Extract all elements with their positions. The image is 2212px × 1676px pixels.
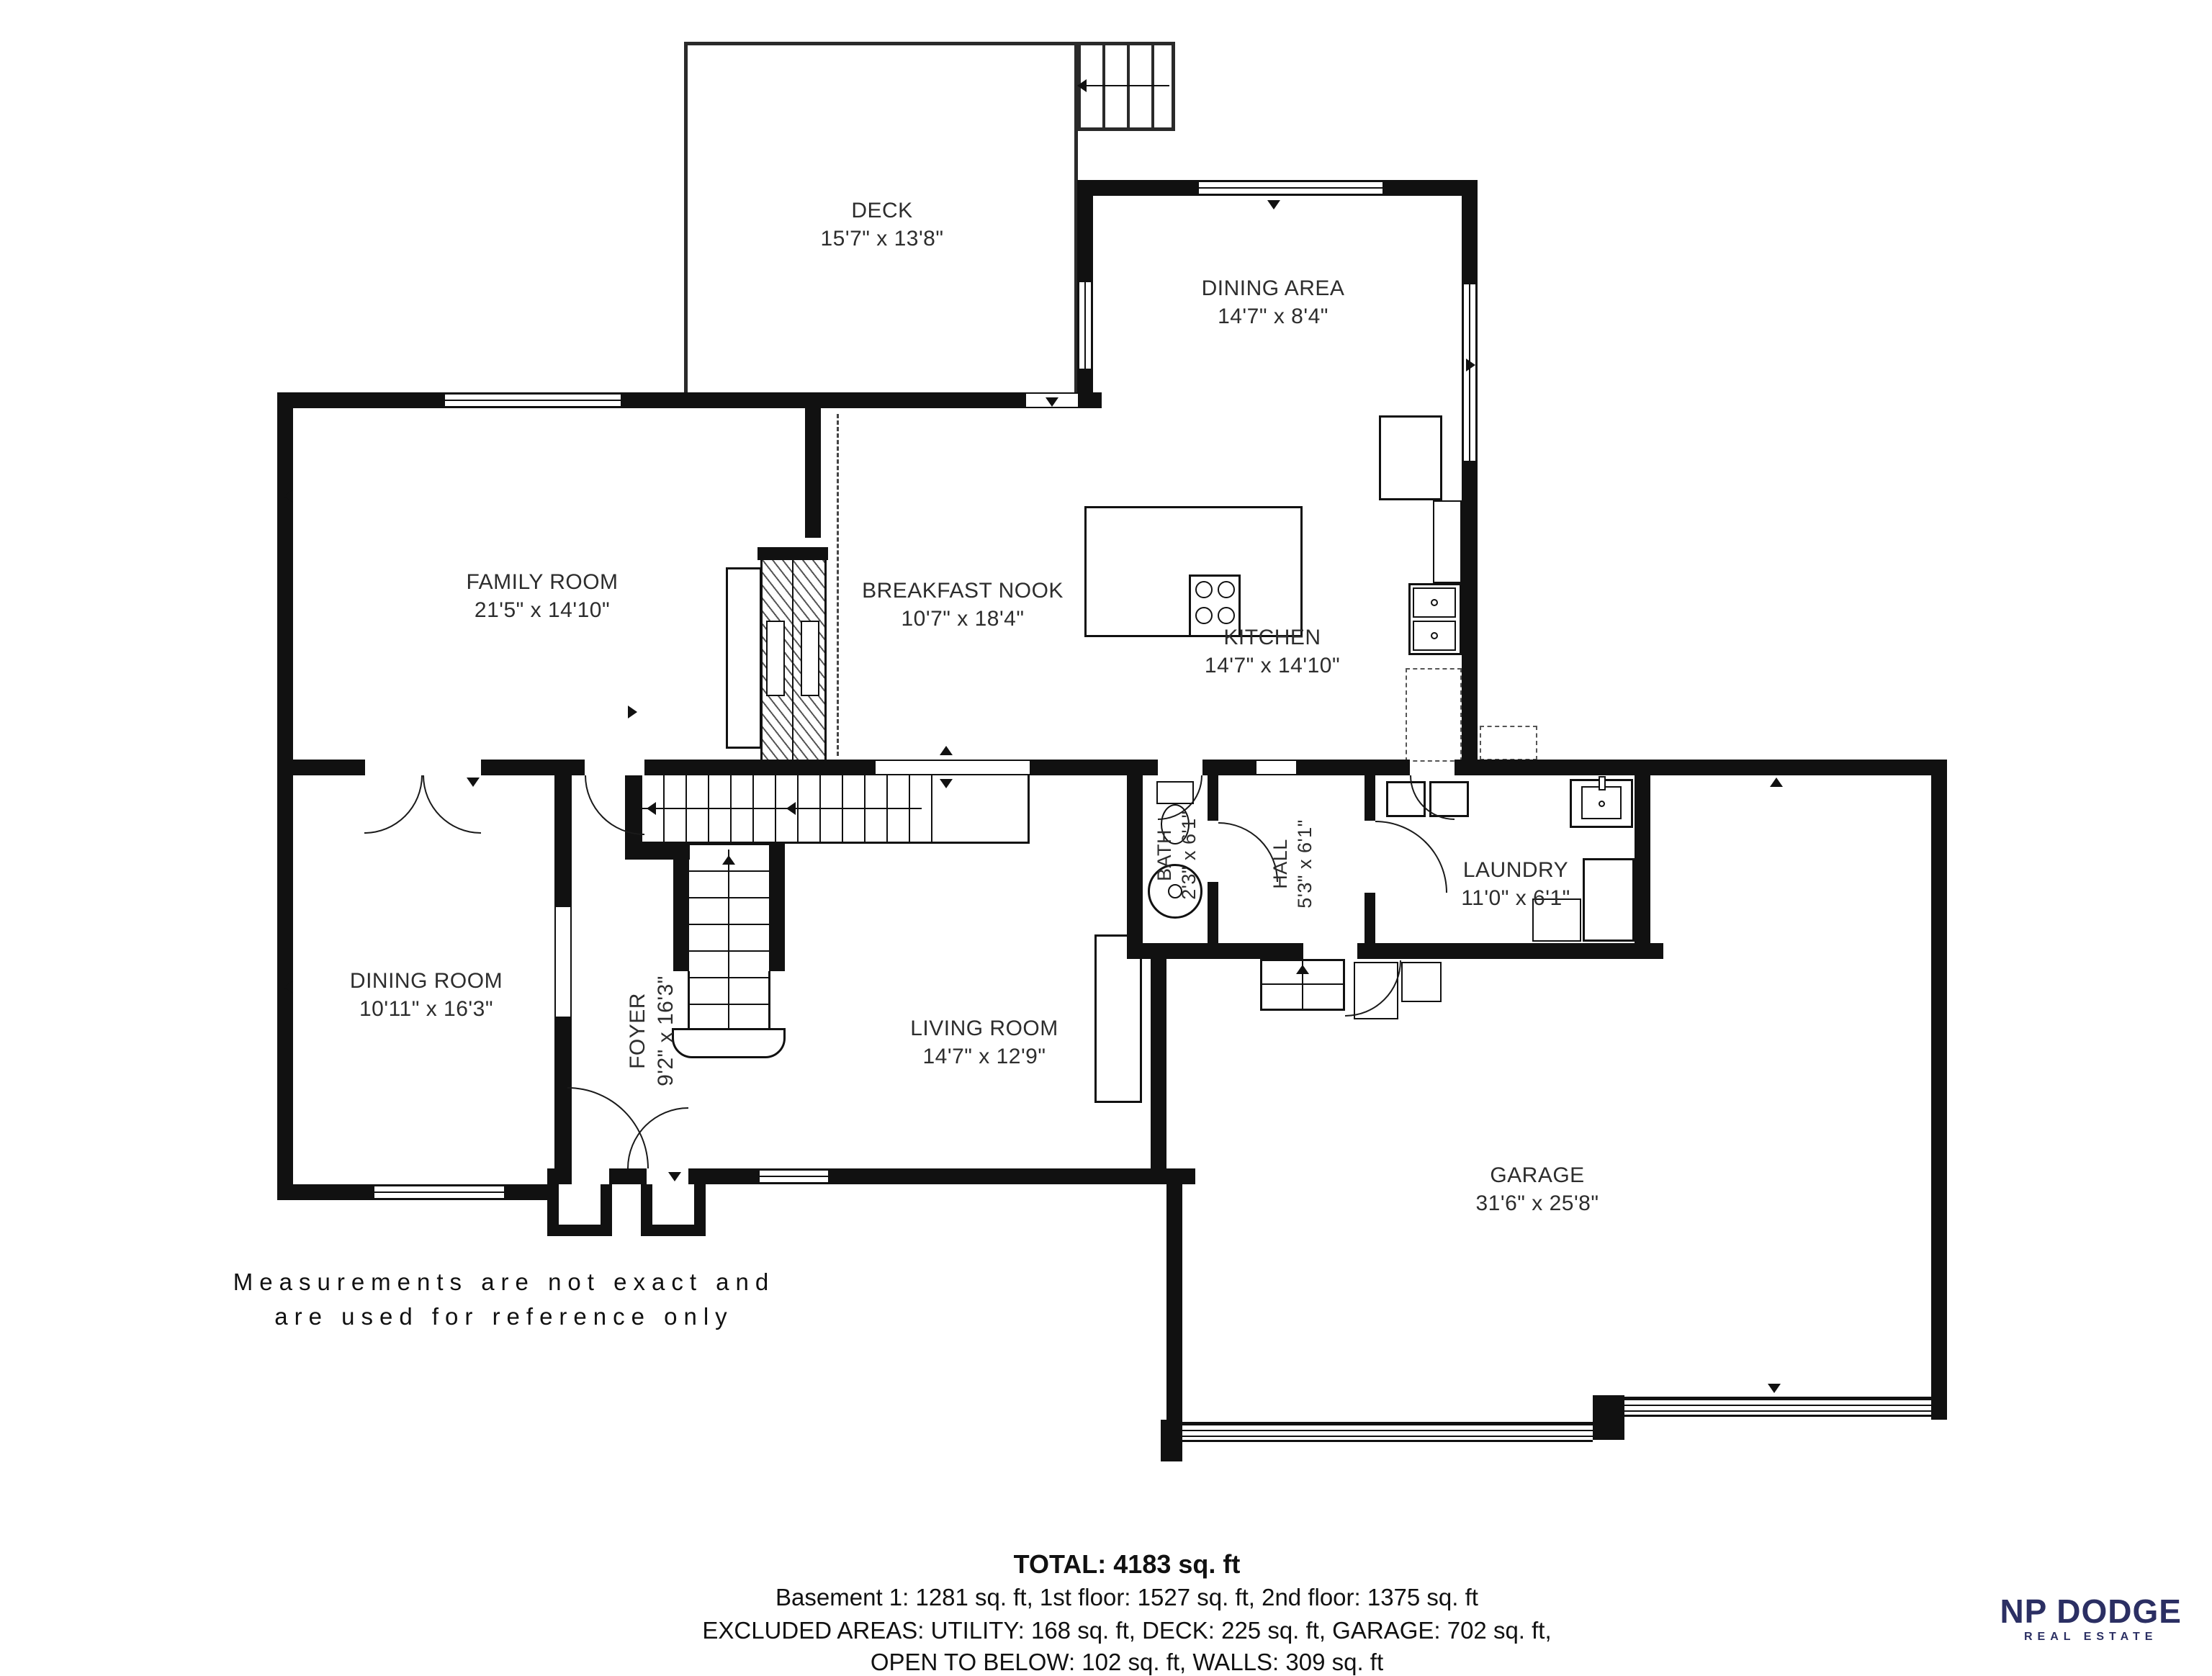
total-area: TOTAL: 4183 sq. ft: [1014, 1549, 1241, 1580]
room-label: DINING AREA: [1202, 274, 1345, 302]
marker-arrow-icon: [284, 981, 293, 994]
excluded-areas-1: EXCLUDED AREAS: UTILITY: 168 sq. ft, DEC…: [702, 1617, 1551, 1644]
room-dims: 31'6" x 25'8": [1475, 1189, 1599, 1217]
room-label: KITCHEN: [1205, 623, 1340, 652]
marker-arrow-icon: [1770, 778, 1783, 787]
brand-tagline: REAL ESTATE: [2000, 1628, 2182, 1646]
stairs-direction-line: [728, 850, 729, 1030]
marker-arrow-icon: [284, 490, 293, 503]
disclaimer-line: Measurements are not exact and: [233, 1265, 775, 1299]
fireplace-cap: [757, 547, 828, 560]
marker-arrow-icon: [467, 778, 480, 787]
room-hall: HALL 5'3" x 6'1": [1268, 819, 1317, 909]
room-label: DINING ROOM: [350, 967, 503, 995]
wall: [805, 408, 821, 538]
burner-icon: [1218, 607, 1235, 624]
marker-arrow-icon: [1934, 1208, 1943, 1221]
wall: [1077, 196, 1093, 282]
deck-stairs-arrow-icon: [1077, 79, 1087, 92]
utility-furnace: [1094, 934, 1142, 1103]
marker-arrow-icon: [1046, 397, 1058, 407]
burner-icon: [1195, 581, 1213, 598]
window: [1199, 180, 1382, 196]
wall: [293, 760, 365, 775]
room-label: FAMILY ROOM: [466, 568, 618, 596]
wall: [1593, 1395, 1624, 1440]
garage-door: [1624, 1397, 1931, 1417]
room-label: FOYER: [624, 976, 652, 1086]
wall: [1455, 760, 1663, 775]
room-label: GARAGE: [1475, 1161, 1599, 1189]
room-dims: 9'2" x 16'3": [652, 976, 680, 1086]
marker-arrow-icon: [940, 746, 953, 755]
wall: [625, 844, 690, 860]
room-label: LIVING ROOM: [910, 1014, 1058, 1042]
wall: [554, 775, 572, 907]
room-garage: GARAGE 31'6" x 25'8": [1475, 1161, 1599, 1217]
kitchen-cabinet: [1379, 415, 1442, 500]
room-breakfast-nook: BREAKFAST NOOK 10'7" x 18'4": [862, 577, 1064, 633]
room-kitchen: KITCHEN 14'7" x 14'10": [1205, 623, 1340, 680]
room-dims: 14'7" x 12'9": [910, 1042, 1058, 1071]
foyer-opening: [554, 907, 572, 1017]
room-label: LAUNDRY: [1461, 856, 1570, 884]
opening: [876, 760, 1030, 775]
room-label: BREAKFAST NOOK: [862, 577, 1064, 605]
garage-door: [1182, 1422, 1593, 1442]
sink-drain-icon: [1431, 599, 1438, 606]
window: [374, 1184, 504, 1200]
wall: [644, 760, 876, 775]
wall: [1364, 775, 1375, 821]
dishwasher: [1406, 668, 1462, 762]
porch-recess: [547, 1184, 612, 1236]
stairs-arrow-icon: [647, 802, 656, 815]
sink-drain-icon: [1599, 801, 1605, 807]
wall: [688, 1168, 760, 1184]
front-door-swing: [627, 1107, 688, 1168]
porch-recess: [641, 1184, 706, 1236]
room-dims: 15'7" x 13'8": [820, 225, 943, 253]
np-dodge-logo: NP DODGE REAL ESTATE: [2000, 1594, 2182, 1646]
room-label: HALL: [1268, 819, 1292, 909]
ceiling-break-line: [837, 414, 839, 756]
wall: [481, 760, 585, 775]
wall: [1030, 760, 1158, 775]
marker-arrow-icon: [1466, 359, 1475, 371]
door-swing: [585, 775, 644, 835]
disclaimer-line: are used for reference only: [233, 1299, 775, 1334]
room-label: DECK: [820, 197, 943, 225]
marker-arrow-icon: [1768, 1384, 1781, 1393]
wall: [1127, 775, 1143, 943]
stairs-arrow-icon: [786, 802, 796, 815]
wall: [1077, 369, 1093, 408]
wall: [1202, 760, 1256, 775]
room-living-room: LIVING ROOM 14'7" x 12'9": [910, 1014, 1058, 1071]
wall: [1364, 893, 1375, 959]
room-label: BATH: [1152, 811, 1177, 900]
wall: [1208, 882, 1218, 959]
stairs-up-arrow-icon: [722, 855, 735, 865]
room-dims: 11'0" x 6'1": [1461, 884, 1570, 912]
wall: [1161, 1420, 1182, 1461]
wall: [547, 1168, 567, 1184]
sliding-door: [1077, 282, 1093, 369]
stair-newel-cap: [672, 1028, 786, 1058]
marker-arrow-icon: [940, 779, 953, 788]
room-family-room: FAMILY ROOM 21'5" x 14'10": [466, 568, 618, 624]
window: [445, 392, 621, 408]
stair-wall: [673, 844, 689, 971]
wall: [277, 392, 1102, 408]
fireplace-divider: [792, 560, 793, 765]
hall-opening: [1256, 760, 1296, 775]
floor-areas: Basement 1: 1281 sq. ft, 1st floor: 1527…: [775, 1584, 1478, 1611]
french-door-swing: [364, 775, 423, 834]
room-dims: 10'7" x 18'4": [862, 605, 1064, 633]
room-dims: 10'11" x 16'3": [350, 995, 503, 1023]
room-dims: 14'7" x 14'10": [1205, 652, 1340, 680]
room-dims: 2'3" x 6'1": [1177, 811, 1201, 900]
room-dining-room: DINING ROOM 10'11" x 16'3": [350, 967, 503, 1023]
wall: [293, 1184, 374, 1200]
wall: [1931, 775, 1947, 1420]
room-dims: 14'7" x 8'4": [1202, 302, 1345, 330]
marker-arrow-icon: [628, 706, 637, 718]
wall: [1208, 775, 1218, 821]
disclaimer-note: Measurements are not exact and are used …: [233, 1265, 775, 1334]
appliance: [1480, 726, 1537, 760]
fireplace-inset: [766, 621, 785, 696]
wall: [828, 1168, 1195, 1184]
deck-stairs: [1074, 42, 1175, 131]
faucet-icon: [1599, 776, 1606, 790]
garage-steps-arrow-icon: [1296, 965, 1309, 974]
marker-arrow-icon: [1267, 200, 1280, 209]
burner-icon: [1195, 607, 1213, 624]
room-laundry: LAUNDRY 11'0" x 6'1": [1461, 856, 1570, 912]
wall: [1635, 775, 1650, 943]
kitchen-counter: [1433, 500, 1462, 583]
room-dining-area: DINING AREA 14'7" x 8'4": [1202, 274, 1345, 330]
room-deck: DECK 15'7" x 13'8": [820, 197, 943, 253]
sink-drain-icon: [1431, 632, 1438, 639]
brand-name: NP DODGE: [2000, 1594, 2182, 1628]
window: [1462, 284, 1478, 461]
garage-steps-line: [1262, 983, 1344, 985]
marker-arrow-icon: [668, 1172, 681, 1181]
room-bath: BATH 2'3" x 6'1": [1152, 811, 1201, 900]
laundry-door-swing: [1375, 821, 1447, 893]
wall: [1357, 943, 1663, 959]
wall: [277, 408, 293, 1200]
wall: [1296, 760, 1410, 775]
wall: [1166, 1168, 1182, 1424]
floor-plan: DECK 15'7" x 13'8" DINING AREA 14'7" x 8…: [0, 0, 2212, 1659]
burner-icon: [1218, 581, 1235, 598]
room-dims: 5'3" x 6'1": [1292, 819, 1317, 909]
wall: [1462, 196, 1478, 775]
deck-stairs-line: [1080, 85, 1169, 86]
excluded-areas-2: OPEN TO BELOW: 102 sq. ft, WALLS: 309 sq…: [871, 1649, 1383, 1676]
stair-wall: [769, 844, 785, 971]
room-foyer: FOYER 9'2" x 16'3": [624, 976, 680, 1086]
garage-closet: [1401, 962, 1442, 1002]
wall: [1151, 959, 1166, 1184]
wall: [609, 1168, 647, 1184]
fireplace-back-panel: [726, 567, 762, 749]
laundry-closet: [1583, 858, 1635, 942]
window: [760, 1168, 828, 1184]
stairs-direction-line: [641, 808, 922, 809]
fireplace-inset: [801, 621, 819, 696]
wall: [1650, 760, 1947, 775]
room-dims: 21'5" x 14'10": [466, 596, 618, 624]
